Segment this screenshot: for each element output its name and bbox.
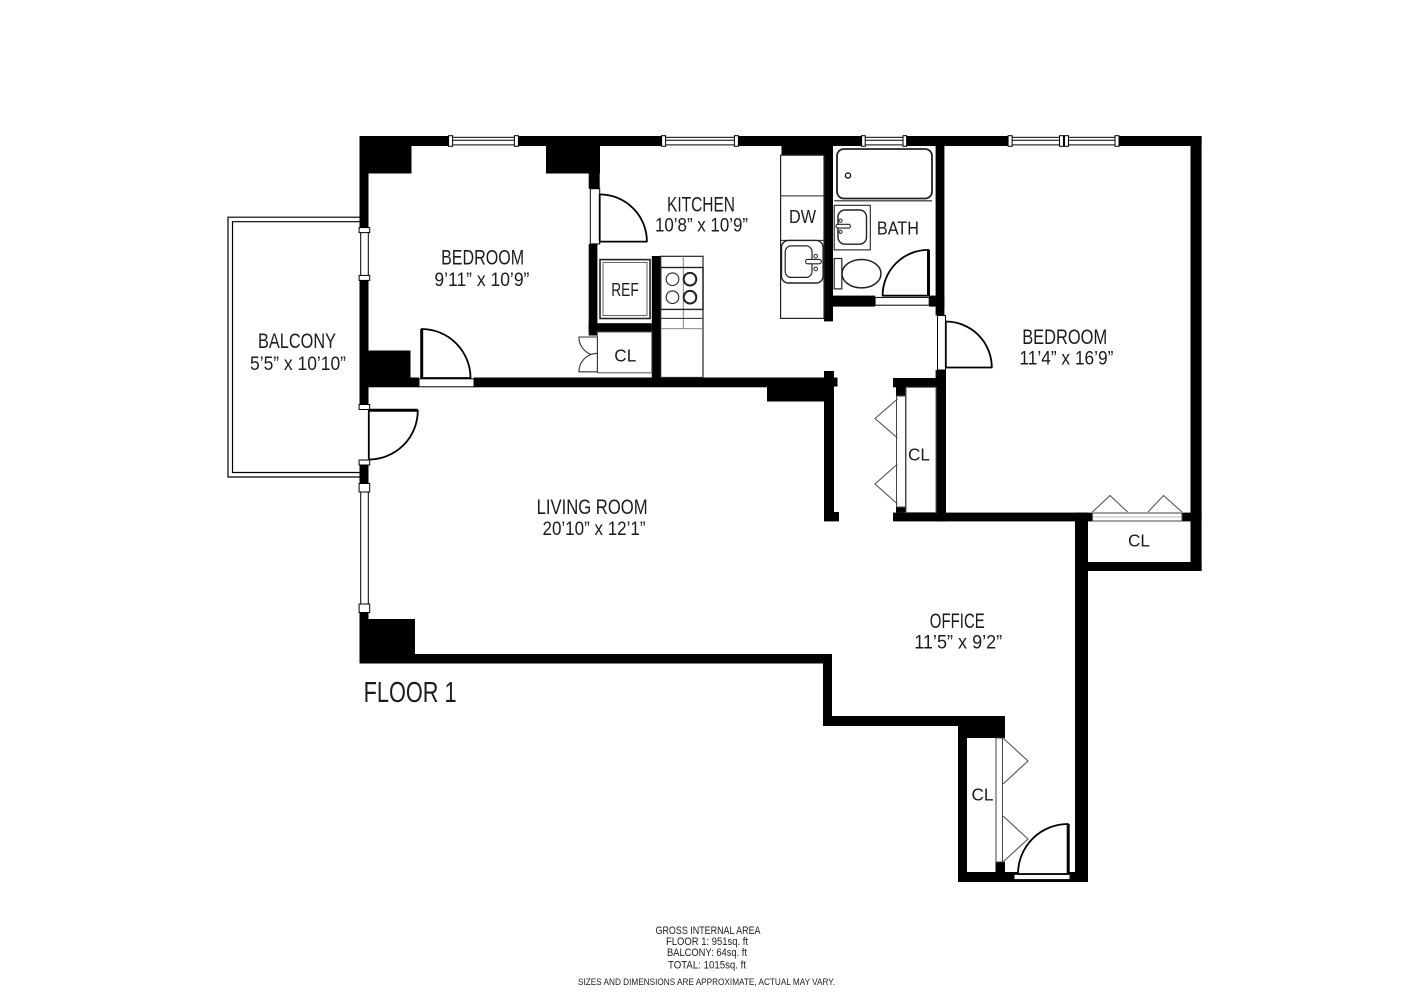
svg-text:TOTAL: 1015sq. ft: TOTAL: 1015sq. ft	[668, 959, 746, 971]
svg-text:OFFICE: OFFICE	[930, 610, 985, 633]
svg-text:CL: CL	[972, 785, 994, 805]
svg-text:BEDROOM: BEDROOM	[441, 246, 524, 269]
svg-text:BALCONY: 64sq. ft: BALCONY: 64sq. ft	[667, 947, 747, 959]
svg-text:CL: CL	[908, 445, 930, 465]
svg-text:11’5” x 9’2”: 11’5” x 9’2”	[914, 633, 1002, 654]
svg-text:LIVING ROOM: LIVING ROOM	[537, 496, 648, 519]
svg-text:BATH: BATH	[877, 218, 919, 239]
svg-text:BALCONY: BALCONY	[258, 330, 336, 353]
svg-text:20’10” x 12’1”: 20’10” x 12’1”	[543, 519, 646, 540]
svg-text:10’8” x 10’9”: 10’8” x 10’9”	[655, 215, 748, 236]
svg-text:FLOOR 1: 951sq. ft: FLOOR 1: 951sq. ft	[666, 936, 748, 948]
svg-text:REF: REF	[611, 279, 639, 300]
svg-text:FLOOR 1: FLOOR 1	[364, 677, 457, 709]
svg-text:5’5” x 10’10”: 5’5” x 10’10”	[250, 354, 346, 375]
svg-text:9’11” x 10’9”: 9’11” x 10’9”	[434, 270, 529, 291]
svg-text:CL: CL	[1128, 531, 1150, 551]
svg-text:11’4” x 16’9”: 11’4” x 16’9”	[1019, 348, 1113, 369]
svg-text:BEDROOM: BEDROOM	[1022, 326, 1107, 349]
svg-text:SIZES AND DIMENSIONS ARE APPRO: SIZES AND DIMENSIONS ARE APPROXIMATE, AC…	[578, 977, 835, 988]
svg-text:KITCHEN: KITCHEN	[667, 194, 735, 217]
svg-text:CL: CL	[614, 346, 636, 366]
svg-text:DW: DW	[789, 206, 816, 227]
